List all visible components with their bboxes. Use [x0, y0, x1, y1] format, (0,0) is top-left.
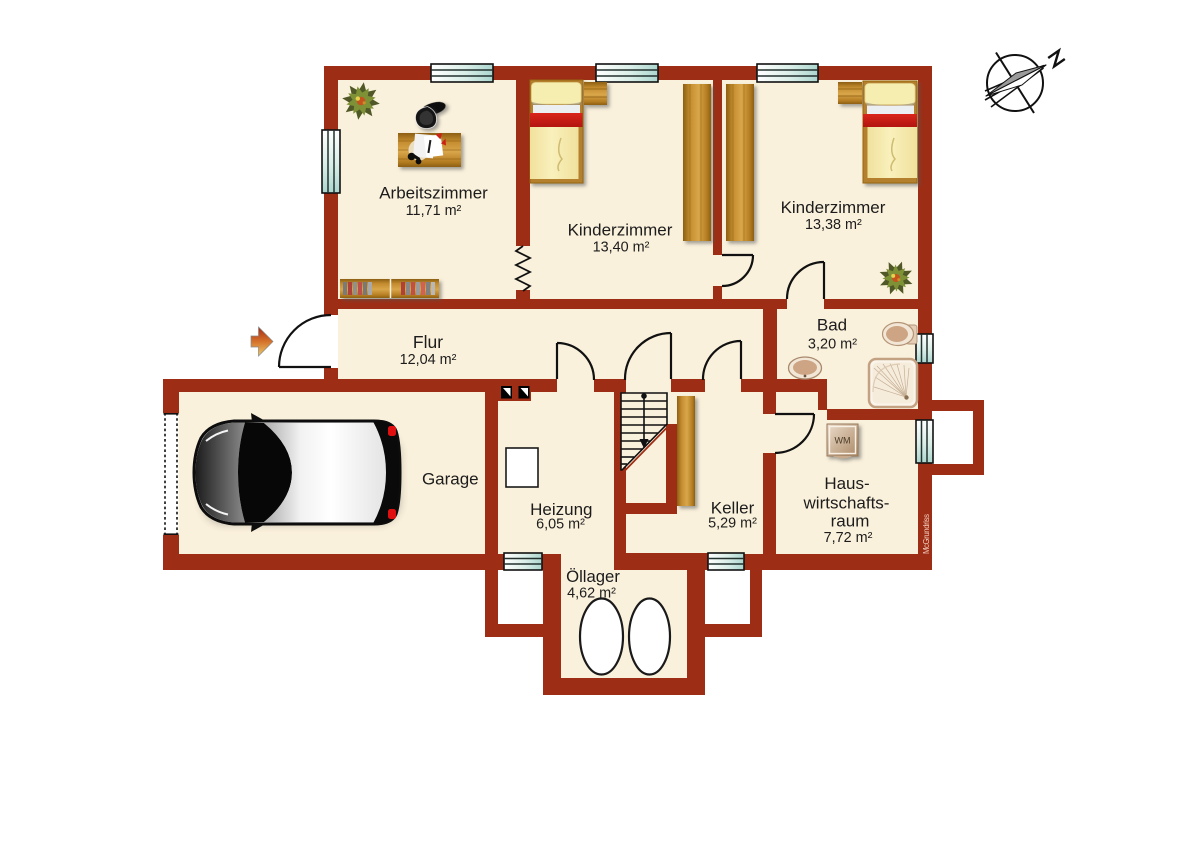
svg-text:Flur: Flur: [413, 332, 443, 352]
svg-text:4,62 m²: 4,62 m²: [567, 586, 616, 602]
svg-text:3,20 m²: 3,20 m²: [808, 336, 857, 352]
svg-text:Haus-: Haus-: [824, 474, 869, 493]
svg-text:Kinderzimmer: Kinderzimmer: [568, 221, 673, 240]
svg-text:Garage: Garage: [422, 470, 479, 489]
svg-text:7,72 m²: 7,72 m²: [824, 530, 873, 546]
svg-text:wirtschafts-: wirtschafts-: [803, 494, 890, 513]
svg-text:5,29 m²: 5,29 m²: [708, 516, 757, 532]
svg-text:12,04 m²: 12,04 m²: [400, 352, 457, 368]
svg-text:Kinderzimmer: Kinderzimmer: [781, 198, 886, 217]
svg-text:6,05 m²: 6,05 m²: [536, 517, 585, 533]
svg-text:raum: raum: [831, 512, 870, 531]
svg-text:WM: WM: [835, 436, 851, 446]
svg-text:Bad: Bad: [817, 315, 847, 334]
svg-text:Öllager: Öllager: [566, 567, 620, 586]
svg-text:Arbeitszimmer: Arbeitszimmer: [379, 184, 488, 203]
svg-text:13,40 m²: 13,40 m²: [593, 240, 650, 256]
svg-text:McGrundriss: McGrundriss: [922, 514, 931, 554]
svg-text:11,71 m²: 11,71 m²: [406, 203, 462, 219]
svg-text:13,38 m²: 13,38 m²: [805, 217, 862, 233]
